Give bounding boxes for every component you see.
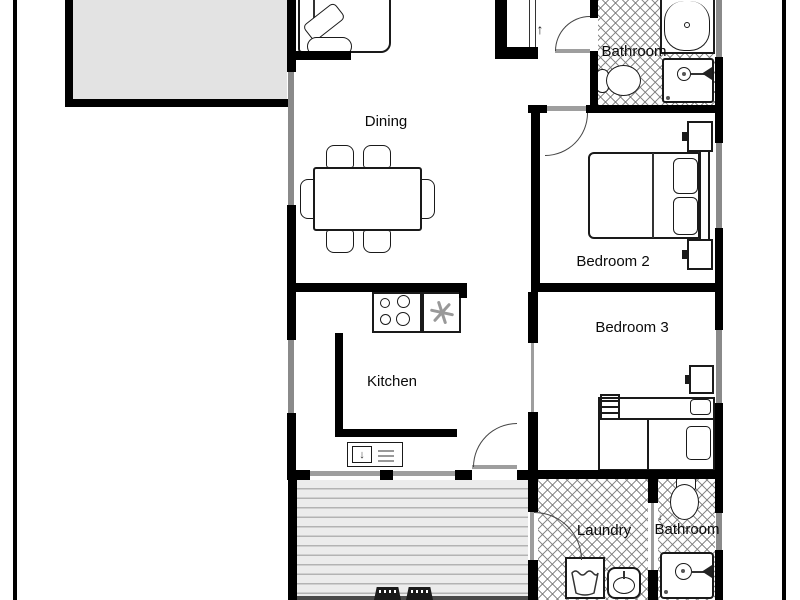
- deck-chair-stud: [411, 590, 413, 593]
- toilet-bottom-bowl: [670, 484, 699, 520]
- nightstand-knob: [685, 375, 690, 384]
- bathroom-top-door-swing: [555, 16, 590, 51]
- laundry-wall-left: [528, 479, 538, 512]
- bathroom-top-wall-left: [590, 51, 598, 113]
- dining-table: [313, 167, 422, 231]
- washer-tub-icon: [570, 564, 600, 597]
- stove-burner: [380, 298, 390, 308]
- bed-headboard: [699, 148, 710, 243]
- garage-wall-left: [65, 0, 73, 107]
- room-label-bedroom-3: Bedroom 3: [595, 319, 668, 336]
- blanket-fold-line: [652, 153, 654, 238]
- deck: [297, 480, 528, 600]
- nightstand-knob: [682, 132, 687, 141]
- nightstand-knob: [682, 250, 687, 259]
- room-label-laundry: Laundry: [577, 522, 631, 539]
- cabinet-inner-box: ↓: [352, 446, 372, 463]
- room-label-bathroom-bottom: Bathroom: [654, 521, 719, 538]
- stove-burner: [397, 295, 410, 308]
- closet-wall-left: [495, 0, 507, 50]
- bedroom-3-doorway: [531, 343, 534, 412]
- deck-wall-left: [288, 480, 297, 600]
- sliding-door: [310, 471, 380, 476]
- bathtub-drain: [684, 22, 690, 28]
- garage-floor: [73, 0, 287, 99]
- pillow: [673, 197, 698, 235]
- boundary-line-left: [13, 0, 17, 600]
- nightstand: [687, 239, 713, 270]
- shower-rose-dot: [681, 569, 685, 573]
- laundry-tap: [623, 571, 625, 579]
- bedhead-wall: [294, 51, 351, 60]
- laundry-bathroom-wall: [648, 570, 658, 600]
- exterior-wall-right: [715, 550, 723, 600]
- window: [716, 143, 722, 228]
- dining-chair: [363, 145, 391, 168]
- bedroom-3-wall-left: [528, 412, 538, 472]
- closet-wall-bottom: [495, 47, 538, 59]
- cabinet-vent-line: [378, 450, 394, 452]
- bedroom-2-door-swing: [545, 113, 588, 156]
- laundry-wall-left: [528, 560, 538, 600]
- room-label-dining: Dining: [365, 113, 408, 130]
- deck-chair-stud: [384, 590, 386, 593]
- window: [716, 330, 722, 403]
- shower-drain-dot: [666, 96, 670, 100]
- room-label-kitchen: Kitchen: [367, 373, 417, 390]
- bedroom-2-wall-left: [531, 108, 540, 288]
- entry-arrow-icon: ↑: [537, 21, 544, 37]
- stove-burner: [396, 312, 410, 326]
- dining-chair: [326, 145, 354, 168]
- nightstand: [689, 365, 714, 394]
- window: [288, 72, 294, 205]
- dining-chair: [326, 230, 354, 253]
- toilet-top-bowl: [606, 65, 641, 96]
- pillow: [690, 399, 711, 415]
- sliding-door: [393, 471, 455, 476]
- exterior-wall-right: [715, 403, 723, 513]
- closet-sliding-door: [529, 0, 536, 47]
- cabinet-vent-line: [378, 455, 394, 457]
- deck-chair-stud: [416, 590, 418, 593]
- bunk-divider-v: [647, 418, 649, 471]
- garage-wall-bottom: [65, 99, 288, 107]
- bedroom-2-door: [545, 106, 588, 111]
- exterior-wall-right: [715, 228, 723, 330]
- rear-wall-seg: [380, 470, 393, 480]
- deck-chair-stud: [394, 590, 396, 593]
- shower-drain-dot: [664, 590, 668, 594]
- exterior-wall-left: [287, 205, 296, 340]
- exterior-wall-left: [287, 0, 296, 72]
- deck-chair-icon: [406, 587, 433, 600]
- bathroom-top-wall-bottom: [590, 105, 723, 113]
- shower-rose-dot: [682, 72, 686, 76]
- kitchen-wall-stub: [459, 283, 467, 298]
- bedroom-divider-wall: [531, 283, 723, 292]
- window: [716, 0, 722, 57]
- deck-door-swing: [473, 423, 517, 467]
- rear-wall-band: [528, 470, 723, 479]
- kitchen-nook-wall-v: [335, 333, 343, 437]
- rear-wall-seg: [287, 470, 310, 480]
- bedroom-2-wall-top: [586, 105, 598, 113]
- pillow: [673, 158, 698, 194]
- pillow: [686, 426, 711, 460]
- exterior-wall-right: [715, 57, 723, 143]
- floor-plan: ↓: [0, 0, 800, 600]
- laundry-bathroom-wall: [648, 479, 658, 503]
- bunk-ladder: [600, 394, 620, 419]
- nightstand: [687, 121, 713, 152]
- laundry-sink-basin: [613, 577, 635, 594]
- deck-chair-stud: [421, 590, 423, 593]
- bedroom-3-wall-left: [528, 292, 538, 343]
- rear-wall-seg: [455, 470, 472, 480]
- kitchen-nook-wall-h: [335, 429, 457, 437]
- cabinet-vent-line: [378, 460, 394, 462]
- deck-chair-icon: [374, 587, 401, 600]
- deck-chair-stud: [379, 590, 381, 593]
- kitchen-dining-wall: [292, 283, 467, 292]
- door-mark-icon: ↓: [658, 512, 663, 523]
- deck-chair-stud: [389, 590, 391, 593]
- boundary-line-right: [782, 0, 786, 600]
- bathroom-top-wall-left: [590, 0, 598, 18]
- deck-chair-stud: [426, 590, 428, 593]
- window: [288, 340, 294, 413]
- stove-burner: [380, 314, 391, 325]
- dining-chair: [363, 230, 391, 253]
- room-label-bathroom-top: Bathroom: [601, 43, 666, 60]
- room-label-bedroom-2: Bedroom 2: [576, 253, 649, 270]
